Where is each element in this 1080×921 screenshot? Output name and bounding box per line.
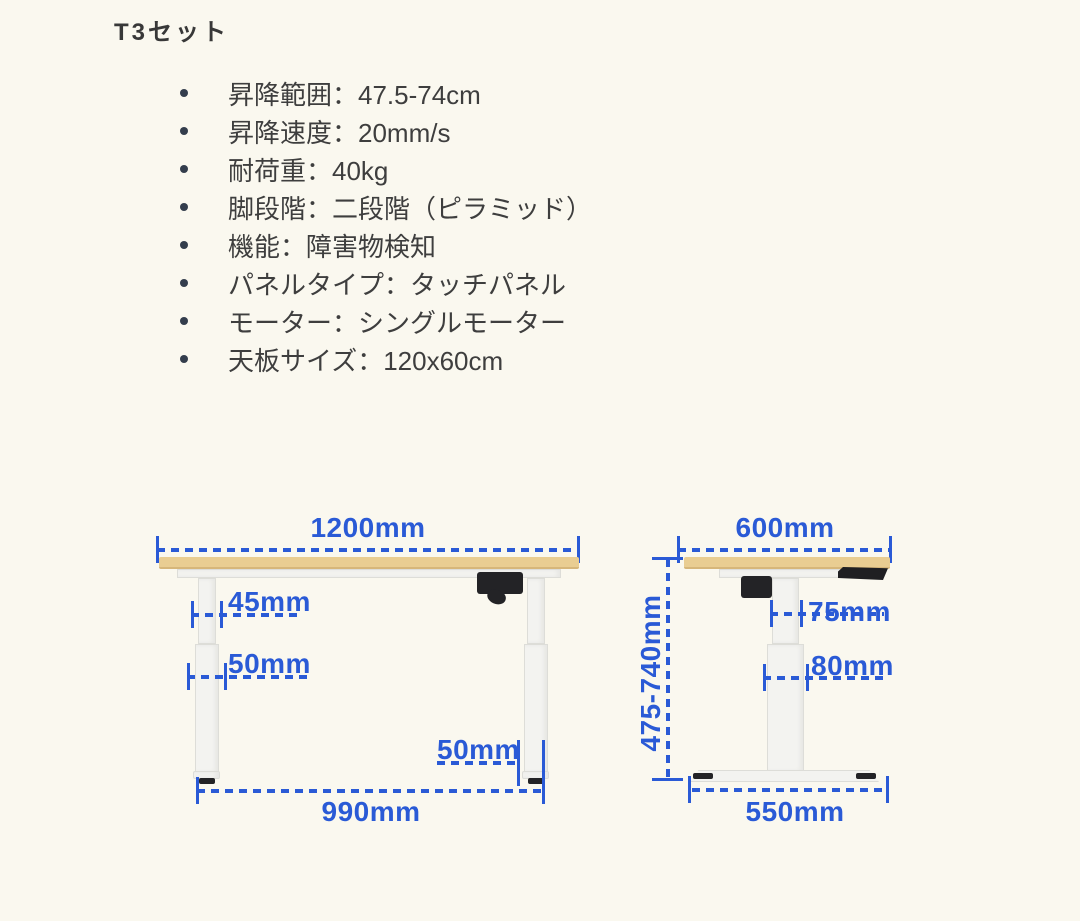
- dimension-tick: [806, 664, 809, 691]
- front-lower-leg-width-label: 50mm: [228, 650, 311, 678]
- spec-item: モーター：シングルモーター: [180, 302, 592, 340]
- side-upper-column-depth-label: 75mm: [808, 598, 891, 626]
- spec-item: パネルタイプ：タッチパネル: [180, 264, 592, 302]
- side-height-dimension-line: [666, 559, 670, 780]
- side-column-lower: [767, 644, 804, 772]
- front-left-foot-pad: [199, 778, 215, 784]
- side-foot-depth-label: 550mm: [745, 798, 844, 826]
- spec-item: 天板サイズ：120x60cm: [180, 340, 592, 378]
- spec-item-text: パネルタイプ：タッチパネル: [228, 265, 566, 302]
- product-spec-page: T3セット 昇降範囲：47.5-74cm 昇降速度：20mm/s 耐荷重：40k…: [0, 0, 1080, 921]
- side-tabletop: [684, 557, 890, 569]
- dimension-tick: [196, 777, 199, 804]
- side-touch-panel: [838, 567, 888, 580]
- dimension-tick: [577, 536, 580, 563]
- front-top-dimension-line: [157, 548, 578, 552]
- side-column-upper: [772, 578, 799, 644]
- bullet-icon: [180, 203, 188, 211]
- spec-item: 昇降範囲：47.5-74cm: [180, 74, 592, 112]
- front-tabletop: [159, 557, 579, 569]
- spec-item: 耐荷重：40kg: [180, 150, 592, 188]
- front-right-leg-upper: [527, 578, 545, 644]
- dimension-tick: [652, 557, 683, 560]
- front-bottom-dimension-line: [197, 789, 543, 793]
- bullet-icon: [180, 165, 188, 173]
- front-right-leg-lower: [524, 644, 548, 773]
- dimension-tick: [220, 601, 223, 628]
- front-frame-beam: [177, 569, 561, 578]
- side-top-dimension-line: [678, 548, 891, 552]
- spec-item-text: 機能：障害物検知: [228, 227, 436, 264]
- spec-item-text: 昇降範囲：47.5-74cm: [228, 75, 481, 112]
- dimension-tick: [763, 664, 766, 691]
- side-lower-column-depth-label: 80mm: [811, 652, 894, 680]
- front-upper-leg-dimension-line: [191, 613, 303, 617]
- dimension-tick: [886, 776, 889, 803]
- side-controller-box: [741, 576, 772, 598]
- dimension-tick: [517, 740, 520, 786]
- front-leg-span-label: 990mm: [321, 798, 420, 826]
- front-upper-leg-width-label: 45mm: [228, 588, 311, 616]
- dimension-tick: [889, 536, 892, 563]
- side-top-depth-label: 600mm: [735, 514, 834, 542]
- bullet-icon: [180, 317, 188, 325]
- dimension-tick: [542, 777, 545, 804]
- dimension-tick: [652, 778, 683, 781]
- spec-item: 脚段階：二段階（ピラミッド）: [180, 188, 592, 226]
- spec-item: 昇降速度：20mm/s: [180, 112, 592, 150]
- dimension-tick: [187, 663, 190, 690]
- spec-item-text: 昇降速度：20mm/s: [228, 113, 450, 150]
- front-right-foot-pad: [528, 778, 544, 784]
- front-foot-dimension-line: [437, 761, 517, 765]
- side-upper-column-dimension-line: [770, 612, 884, 616]
- front-left-foot: [193, 771, 220, 779]
- spec-item-text: モーター：シングルモーター: [228, 303, 566, 340]
- front-right-foot: [522, 771, 549, 779]
- front-left-leg-lower: [195, 644, 219, 773]
- spec-item-text: 耐荷重：40kg: [228, 151, 388, 188]
- side-height-range-label: 475-740mm: [637, 588, 665, 758]
- spec-item-text: 天板サイズ：120x60cm: [228, 341, 503, 378]
- side-front-foot-pad: [693, 773, 713, 779]
- front-left-leg-upper: [198, 578, 216, 644]
- spec-item: 機能：障害物検知: [180, 226, 592, 264]
- front-controller-box: [477, 572, 523, 594]
- dimension-tick: [800, 600, 803, 627]
- dimension-tick: [688, 776, 691, 803]
- bullet-icon: [180, 89, 188, 97]
- side-lower-column-dimension-line: [763, 676, 885, 680]
- bullet-icon: [180, 279, 188, 287]
- bullet-icon: [180, 355, 188, 363]
- front-controller-cable: [486, 588, 508, 606]
- side-frame-beam: [719, 569, 857, 578]
- dimension-tick: [677, 536, 680, 563]
- dimension-tick: [156, 536, 159, 563]
- page-title: T3セット: [114, 12, 229, 47]
- dimension-tick: [770, 600, 773, 627]
- dimension-tick: [224, 663, 227, 690]
- dimension-tick: [191, 601, 194, 628]
- spec-item-text: 脚段階：二段階（ピラミッド）: [228, 189, 592, 226]
- side-rear-foot-pad: [856, 773, 876, 779]
- spec-list: 昇降範囲：47.5-74cm 昇降速度：20mm/s 耐荷重：40kg 脚段階：…: [180, 74, 592, 378]
- front-top-width-label: 1200mm: [310, 514, 425, 542]
- bullet-icon: [180, 127, 188, 135]
- side-bottom-dimension-line: [692, 788, 884, 792]
- side-foot-bar: [689, 770, 879, 782]
- front-lower-leg-dimension-line: [187, 675, 307, 679]
- front-foot-width-label: 50mm: [437, 736, 520, 764]
- dimension-tick: [542, 740, 545, 786]
- bullet-icon: [180, 241, 188, 249]
